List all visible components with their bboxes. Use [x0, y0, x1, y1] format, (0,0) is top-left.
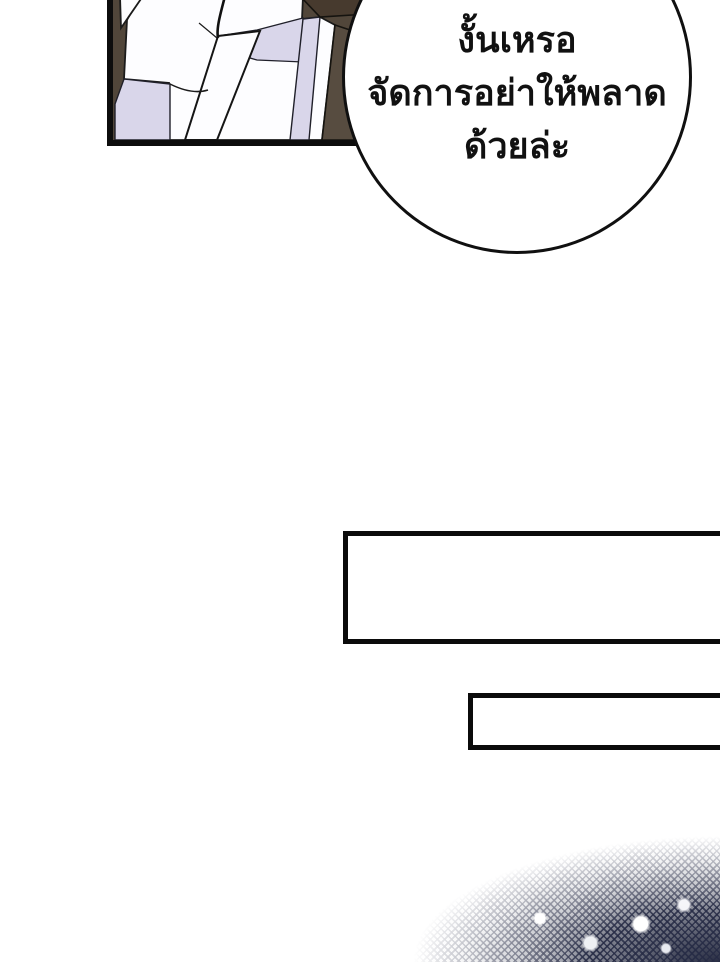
empty-text-box-2 — [468, 693, 720, 750]
speech-bubble-text: งั้นเหรอ จัดการอย่าให้พลาด ด้วยล่ะ — [345, 13, 689, 172]
speech-bubble-line-2: จัดการอย่าให้พลาด — [345, 66, 689, 119]
empty-text-box-1 — [343, 531, 720, 644]
halftone-texture — [360, 826, 720, 962]
clothing-closeup-art — [107, 0, 368, 146]
comic-panel-clothing-closeup — [107, 0, 368, 146]
speech-bubble-line-1: งั้นเหรอ — [345, 13, 689, 66]
speech-bubble-line-3: ด้วยล่ะ — [345, 119, 689, 172]
comic-page: งั้นเหรอ จัดการอย่าให้พลาด ด้วยล่ะ — [0, 0, 720, 962]
